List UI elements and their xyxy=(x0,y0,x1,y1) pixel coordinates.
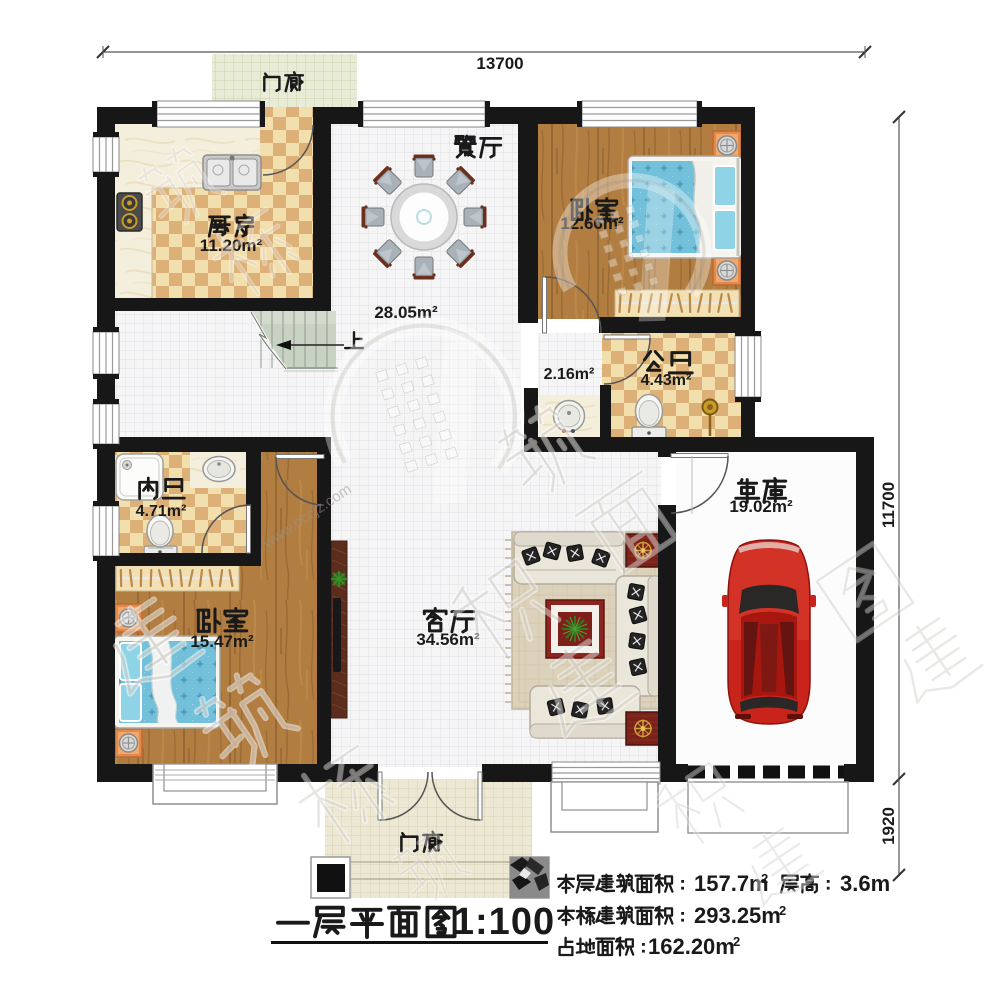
svg-text:2.16m²: 2.16m² xyxy=(544,366,595,383)
svg-text:3.6m: 3.6m xyxy=(840,871,890,896)
svg-text:13700: 13700 xyxy=(476,54,523,73)
svg-text:2: 2 xyxy=(761,871,768,886)
svg-text:4.71m²: 4.71m² xyxy=(136,503,187,520)
svg-text:15.47m²: 15.47m² xyxy=(190,632,254,651)
svg-text:11700: 11700 xyxy=(879,482,898,528)
svg-text:2: 2 xyxy=(779,903,786,918)
svg-text:19.02m²: 19.02m² xyxy=(729,497,793,516)
svg-text:162.20m: 162.20m xyxy=(648,934,735,959)
svg-text:1:100: 1:100 xyxy=(453,901,555,943)
svg-text:4.43m²: 4.43m² xyxy=(641,372,692,389)
svg-text:293.25m: 293.25m xyxy=(694,903,781,928)
svg-text:1920: 1920 xyxy=(879,807,898,845)
svg-text:34.56m²: 34.56m² xyxy=(416,630,480,649)
svg-text:2: 2 xyxy=(733,934,740,949)
